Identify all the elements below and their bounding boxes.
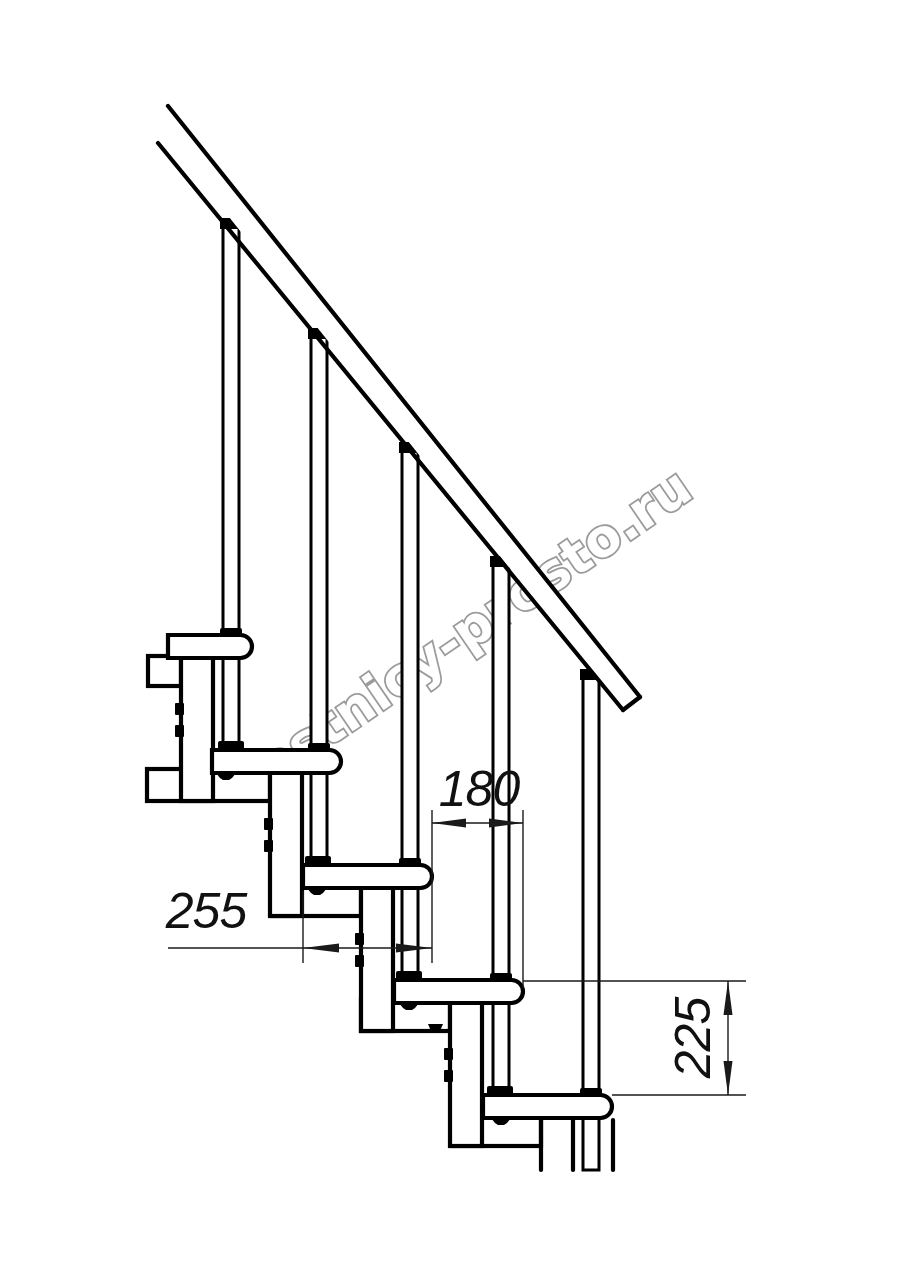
bolt-icon [444, 1070, 453, 1082]
support-column [181, 656, 213, 801]
baluster-rod [311, 331, 327, 865]
bolt-icon [175, 725, 184, 737]
support-column [361, 886, 393, 1031]
tread [303, 865, 432, 888]
bolt-icon [355, 955, 364, 967]
baluster-rod [223, 221, 239, 750]
bolt-icon [444, 1048, 453, 1060]
arrow-icon [432, 819, 466, 828]
support-column [450, 1001, 482, 1146]
support-column-cut [541, 1116, 613, 1170]
collar-icon [580, 1088, 602, 1096]
baluster-rod [402, 445, 418, 980]
bolt-icon [355, 933, 364, 945]
arrow-icon [724, 1061, 733, 1095]
dimension-label-riser-height: 225 [665, 997, 721, 1080]
bolt-icon [264, 818, 273, 830]
support-column [270, 771, 302, 916]
dimension-label-step-run: 180 [439, 761, 521, 817]
tread [212, 750, 341, 773]
dimension-label-tread-depth: 255 [165, 883, 248, 939]
tread [394, 980, 523, 1003]
arrow-icon [303, 944, 339, 953]
bolt-icon [264, 840, 273, 852]
support-tray [148, 656, 181, 686]
foot-icon [487, 1086, 513, 1095]
foot-icon [305, 856, 331, 865]
collar-icon [399, 858, 421, 866]
staircase-technical-drawing: lestnicy-prosto.ru [0, 0, 914, 1280]
collar-icon [490, 973, 512, 981]
collar-icon [308, 743, 330, 751]
tread [168, 635, 252, 658]
arrow-icon [724, 981, 733, 1015]
collar-icon [220, 628, 242, 636]
foot-icon [396, 971, 422, 980]
foot-icon [218, 741, 244, 750]
baluster-rod [493, 559, 509, 1095]
tread [483, 1095, 612, 1118]
bolt-icon [175, 703, 184, 715]
